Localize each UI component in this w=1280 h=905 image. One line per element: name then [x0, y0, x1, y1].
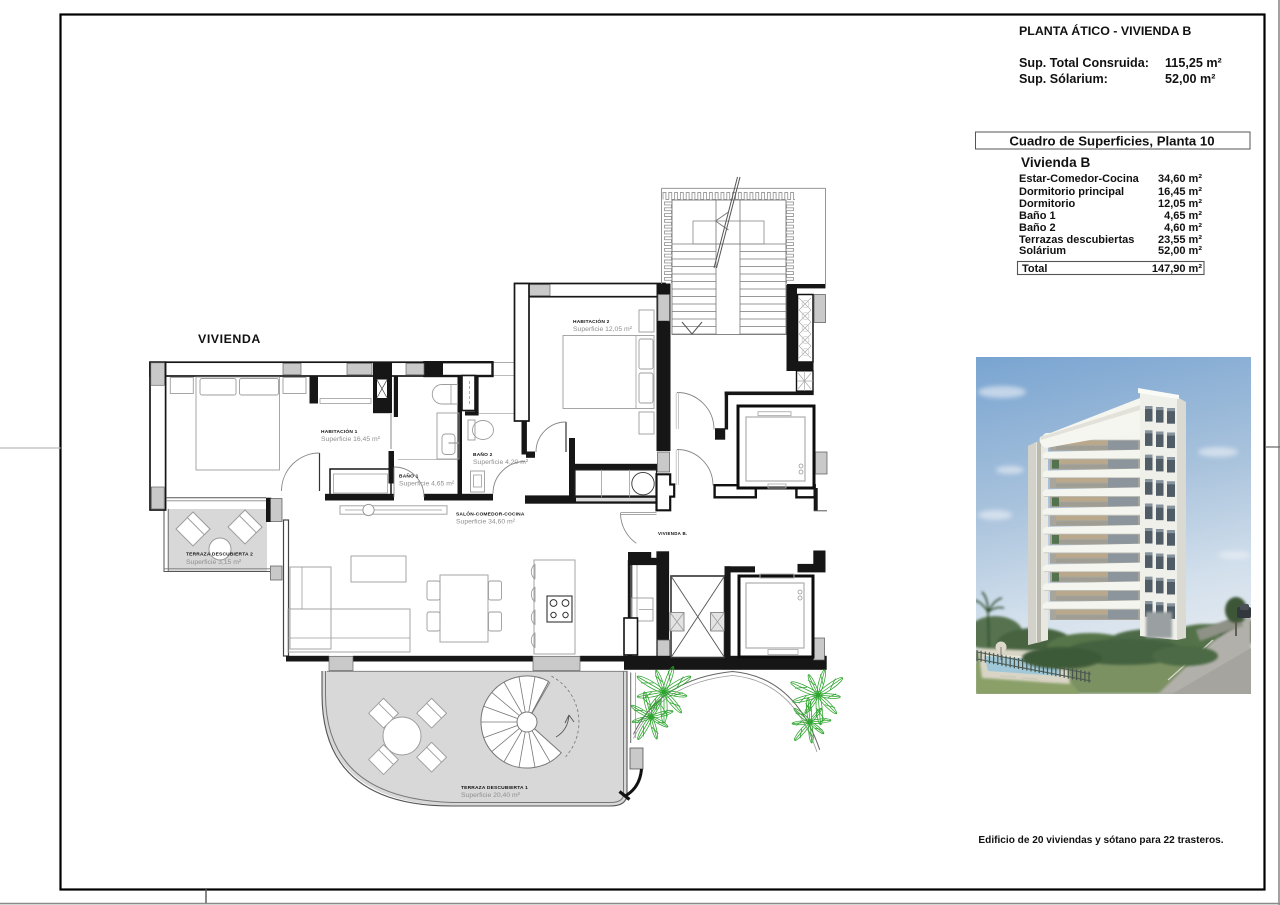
svg-text:Sup. Sólarium:: Sup. Sólarium:: [1019, 72, 1108, 86]
svg-text:52,00 m²: 52,00 m²: [1158, 245, 1202, 257]
svg-text:Dormitorio principal: Dormitorio principal: [1019, 186, 1124, 198]
svg-text:52,00 m²: 52,00 m²: [1165, 72, 1215, 86]
svg-text:BAÑO 2: BAÑO 2: [473, 451, 493, 458]
svg-text:Superficie 12,05 m²: Superficie 12,05 m²: [573, 326, 633, 333]
svg-text:Solárium: Solárium: [1019, 245, 1066, 257]
svg-text:Sup. Total Consruida:: Sup. Total Consruida:: [1019, 56, 1149, 70]
svg-text:Superficie 20,40 m²: Superficie 20,40 m²: [461, 792, 521, 799]
svg-text:Total: Total: [1022, 263, 1047, 275]
svg-text:VIVIENDA B.: VIVIENDA B.: [658, 531, 688, 536]
svg-text:Superficie 3,15 m²: Superficie 3,15 m²: [186, 559, 242, 566]
svg-text:34,60 m²: 34,60 m²: [1158, 173, 1202, 185]
svg-text:VIVIENDA: VIVIENDA: [198, 332, 261, 346]
svg-text:4,60 m²: 4,60 m²: [1164, 222, 1202, 234]
svg-text:Cuadro de Superficies, Planta: Cuadro de Superficies, Planta 10: [1009, 134, 1214, 149]
svg-text:Edificio de 20 viviendas y sót: Edificio de 20 viviendas y sótano para 2…: [978, 835, 1223, 846]
svg-text:16,45 m²: 16,45 m²: [1158, 186, 1202, 198]
svg-text:23,55 m²: 23,55 m²: [1158, 234, 1202, 246]
svg-text:4,65 m²: 4,65 m²: [1164, 210, 1202, 222]
svg-text:TERRAZA DESCUBIERTA 1: TERRAZA DESCUBIERTA 1: [461, 785, 528, 791]
svg-text:12,05 m²: 12,05 m²: [1158, 198, 1202, 210]
svg-text:Baño 1: Baño 1: [1019, 210, 1056, 222]
svg-text:TERRAZA DESCUBIERTA 2: TERRAZA DESCUBIERTA 2: [186, 552, 253, 558]
svg-text:Superficie 34,60 m²: Superficie 34,60 m²: [456, 519, 516, 526]
svg-text:PLANTA ÁTICO - VIVIENDA B: PLANTA ÁTICO - VIVIENDA B: [1019, 23, 1191, 38]
svg-text:Superficie 4,65 m²: Superficie 4,65 m²: [399, 481, 455, 488]
svg-text:115,25 m²: 115,25 m²: [1165, 56, 1222, 70]
svg-text:Baño 2: Baño 2: [1019, 222, 1056, 234]
svg-text:Dormitorio: Dormitorio: [1019, 198, 1076, 210]
svg-text:Estar-Comedor-Cocina: Estar-Comedor-Cocina: [1019, 173, 1140, 185]
svg-text:Superficie 16,45 m²: Superficie 16,45 m²: [321, 436, 381, 443]
svg-text:Superficie 4,20 m²: Superficie 4,20 m²: [473, 459, 529, 466]
svg-text:Terrazas descubiertas: Terrazas descubiertas: [1019, 234, 1134, 246]
svg-text:147,90 m²: 147,90 m²: [1152, 263, 1202, 275]
svg-text:BAÑO 1: BAÑO 1: [399, 473, 419, 480]
svg-text:Vivienda B: Vivienda B: [1021, 155, 1090, 170]
